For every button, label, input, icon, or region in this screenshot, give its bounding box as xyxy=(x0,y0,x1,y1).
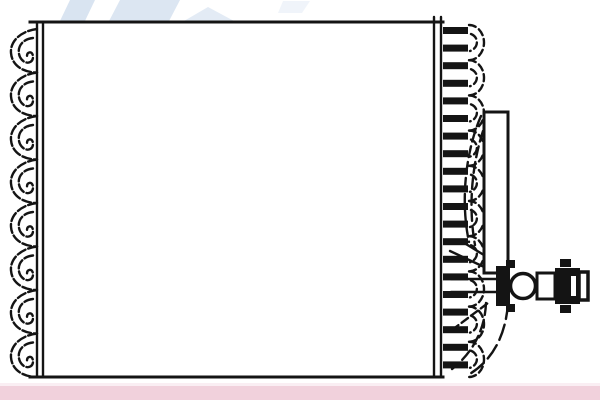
fin-loop xyxy=(11,29,37,73)
watermark-fragment xyxy=(278,1,310,13)
service-fitting xyxy=(496,259,588,313)
tube-row xyxy=(443,309,468,316)
fin-loop xyxy=(11,247,37,291)
left-fin-pack xyxy=(11,29,37,377)
tube-row xyxy=(443,344,468,351)
fin-loop xyxy=(11,203,37,247)
fin-loop xyxy=(11,334,37,378)
tube-row xyxy=(443,133,468,140)
drawing-canvas xyxy=(0,0,600,400)
watermark-fragment xyxy=(108,0,180,23)
tube-row xyxy=(443,97,468,104)
fitting-body xyxy=(537,273,555,299)
watermark-fragment xyxy=(59,0,95,23)
tube-row xyxy=(443,80,468,87)
valve-nub-top xyxy=(560,259,571,267)
tube-row xyxy=(443,150,468,157)
tube-row xyxy=(443,62,468,69)
watermark-fragment xyxy=(184,7,234,21)
logo-watermark xyxy=(59,0,310,23)
fin-scallop xyxy=(469,25,484,60)
tube-row xyxy=(443,168,468,175)
valve-block xyxy=(555,268,580,304)
tube-row xyxy=(443,221,468,228)
fin-loop xyxy=(11,160,37,204)
inlet-pipe xyxy=(484,112,508,273)
valve-nub-bottom xyxy=(560,305,571,313)
fin-scallop xyxy=(469,60,484,95)
tube-row xyxy=(443,27,468,34)
fin-loop xyxy=(11,73,37,117)
fitting-flange xyxy=(496,266,510,306)
fin-scallop xyxy=(469,271,484,306)
heat-exchanger-drawing xyxy=(0,0,600,400)
footer-accent-bar xyxy=(0,383,600,400)
footer-accent-fill xyxy=(0,386,600,400)
tube-row xyxy=(443,115,468,122)
fitting-nut xyxy=(511,274,536,299)
valve-cap xyxy=(579,272,588,300)
valve-slit xyxy=(571,276,576,296)
footer-accent-highlight xyxy=(0,383,600,386)
tube-row xyxy=(443,45,468,52)
fin-loop xyxy=(11,116,37,160)
core-face xyxy=(45,24,433,375)
fin-loop xyxy=(11,290,37,334)
